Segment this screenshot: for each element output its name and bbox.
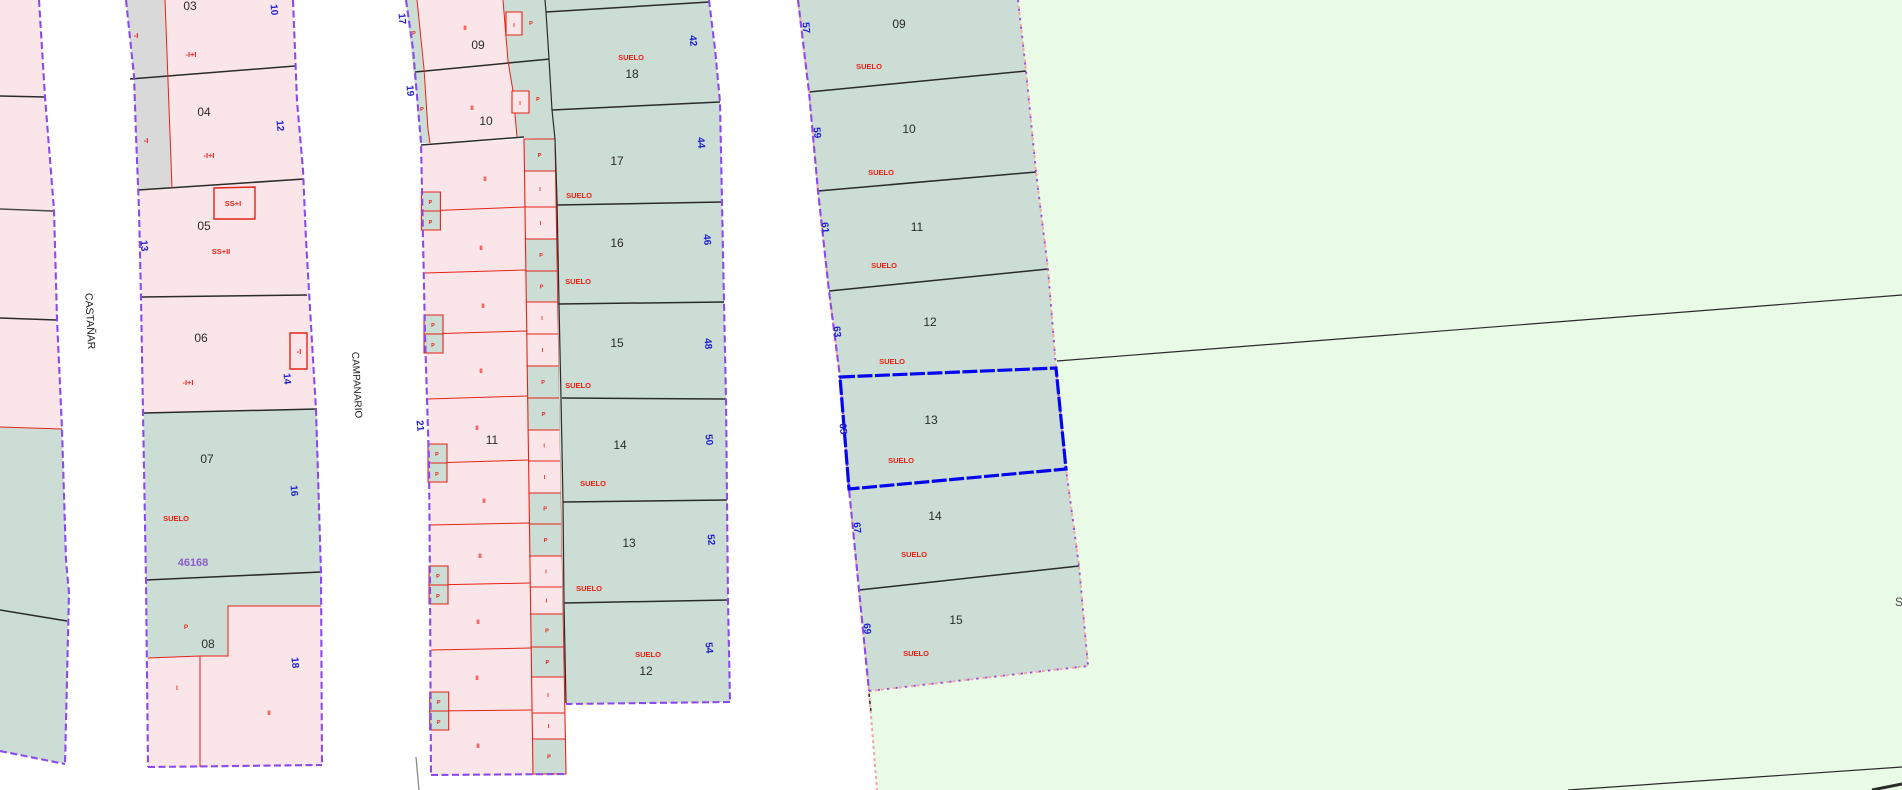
svg-text:P: P <box>540 285 544 291</box>
svg-text:P: P <box>436 594 440 600</box>
svg-text:-I: -I <box>134 31 139 40</box>
svg-text:18: 18 <box>289 657 301 669</box>
svg-text:21: 21 <box>414 420 426 432</box>
svg-text:15: 15 <box>949 613 963 627</box>
svg-text:10: 10 <box>268 4 280 16</box>
svg-text:07: 07 <box>200 452 214 466</box>
svg-text:II: II <box>483 177 487 183</box>
svg-text:69: 69 <box>861 623 873 635</box>
svg-text:13: 13 <box>622 536 636 550</box>
svg-text:P: P <box>435 472 439 478</box>
svg-text:SUELO: SUELO <box>871 261 897 270</box>
svg-text:II: II <box>470 106 474 112</box>
svg-text:46168: 46168 <box>178 557 209 569</box>
svg-text:67: 67 <box>851 522 863 534</box>
svg-text:59: 59 <box>811 127 823 139</box>
svg-text:P: P <box>436 574 440 580</box>
svg-text:P: P <box>544 538 548 544</box>
svg-text:P: P <box>435 452 439 458</box>
svg-text:09: 09 <box>892 17 906 31</box>
svg-text:II: II <box>475 676 479 682</box>
svg-text:14: 14 <box>281 373 293 385</box>
svg-text:12: 12 <box>923 315 937 329</box>
svg-text:P: P <box>431 323 435 329</box>
svg-text:12: 12 <box>639 664 653 678</box>
svg-text:P: P <box>420 107 424 113</box>
svg-text:P: P <box>437 720 441 726</box>
svg-text:17: 17 <box>396 13 408 25</box>
svg-text:P: P <box>412 31 416 37</box>
svg-text:-I+I: -I+I <box>182 378 193 387</box>
svg-text:54: 54 <box>703 642 715 654</box>
svg-text:II: II <box>476 620 480 626</box>
svg-text:II: II <box>479 369 483 375</box>
svg-text:11: 11 <box>911 220 924 234</box>
svg-text:SUELO: SUELO <box>576 584 602 593</box>
svg-text:14: 14 <box>613 438 627 452</box>
svg-text:P: P <box>431 343 435 349</box>
svg-text:52: 52 <box>705 534 717 546</box>
svg-text:II: II <box>476 744 480 750</box>
svg-text:46: 46 <box>701 234 713 246</box>
svg-text:P: P <box>542 412 546 418</box>
svg-text:44: 44 <box>695 137 707 149</box>
svg-text:SUELO: SUELO <box>888 456 914 465</box>
svg-text:II: II <box>478 554 482 560</box>
svg-text:08: 08 <box>201 637 215 651</box>
svg-text:P: P <box>429 200 433 206</box>
svg-text:SUELO: SUELO <box>856 62 882 71</box>
svg-text:19: 19 <box>404 85 416 97</box>
svg-text:57: 57 <box>800 22 812 34</box>
svg-text:06: 06 <box>194 331 208 345</box>
svg-text:04: 04 <box>197 105 211 119</box>
svg-text:P: P <box>437 700 441 706</box>
svg-text:SS+II: SS+II <box>212 247 231 256</box>
svg-text:SUELO: SUELO <box>879 357 905 366</box>
svg-text:05: 05 <box>197 219 211 233</box>
svg-text:SUELO: SUELO <box>901 550 927 559</box>
svg-text:-I: -I <box>144 136 149 145</box>
svg-text:SUELO: SUELO <box>618 53 644 62</box>
svg-text:16: 16 <box>288 485 300 497</box>
svg-text:16: 16 <box>610 236 624 250</box>
svg-text:17: 17 <box>610 154 624 168</box>
svg-text:S: S <box>1895 595 1902 609</box>
svg-text:SUELO: SUELO <box>565 277 591 286</box>
svg-text:P: P <box>545 629 549 635</box>
svg-text:SUELO: SUELO <box>635 650 661 659</box>
svg-text:P: P <box>538 153 542 159</box>
svg-text:P: P <box>541 380 545 386</box>
svg-text:SUELO: SUELO <box>868 168 894 177</box>
svg-text:P: P <box>543 507 547 513</box>
svg-text:II: II <box>463 26 467 32</box>
svg-text:II: II <box>481 304 485 310</box>
svg-text:50: 50 <box>703 434 715 446</box>
svg-text:13: 13 <box>924 413 938 427</box>
svg-text:-I+I: -I+I <box>203 151 214 160</box>
svg-text:II: II <box>475 426 479 432</box>
svg-text:P: P <box>184 625 188 631</box>
svg-text:II: II <box>267 711 271 717</box>
svg-text:P: P <box>547 755 551 761</box>
svg-text:12: 12 <box>274 120 286 132</box>
svg-text:P: P <box>546 660 550 666</box>
svg-text:48: 48 <box>702 338 714 350</box>
svg-text:II: II <box>479 246 483 252</box>
svg-text:15: 15 <box>610 336 624 350</box>
svg-text:P: P <box>536 97 540 103</box>
svg-text:SUELO: SUELO <box>565 381 591 390</box>
svg-text:14: 14 <box>928 509 942 523</box>
svg-text:SUELO: SUELO <box>903 649 929 658</box>
svg-text:13: 13 <box>138 240 150 252</box>
svg-text:18: 18 <box>625 67 639 81</box>
svg-text:P: P <box>429 220 433 226</box>
svg-text:09: 09 <box>471 38 485 52</box>
svg-text:11: 11 <box>486 433 499 447</box>
svg-text:65: 65 <box>837 423 849 435</box>
svg-text:63: 63 <box>831 326 843 338</box>
svg-text:03: 03 <box>183 0 197 13</box>
svg-text:P: P <box>539 253 543 259</box>
svg-text:P: P <box>529 21 533 27</box>
svg-text:-I+I: -I+I <box>185 50 196 59</box>
svg-text:SUELO: SUELO <box>163 514 189 523</box>
svg-text:-I: -I <box>297 347 302 356</box>
svg-text:SUELO: SUELO <box>580 479 606 488</box>
svg-text:61: 61 <box>819 222 831 234</box>
svg-text:II: II <box>482 499 486 505</box>
svg-text:SUELO: SUELO <box>566 191 592 200</box>
svg-text:42: 42 <box>687 35 699 47</box>
svg-text:10: 10 <box>902 122 916 136</box>
svg-text:SS+I: SS+I <box>225 199 241 208</box>
svg-text:10: 10 <box>479 114 493 128</box>
